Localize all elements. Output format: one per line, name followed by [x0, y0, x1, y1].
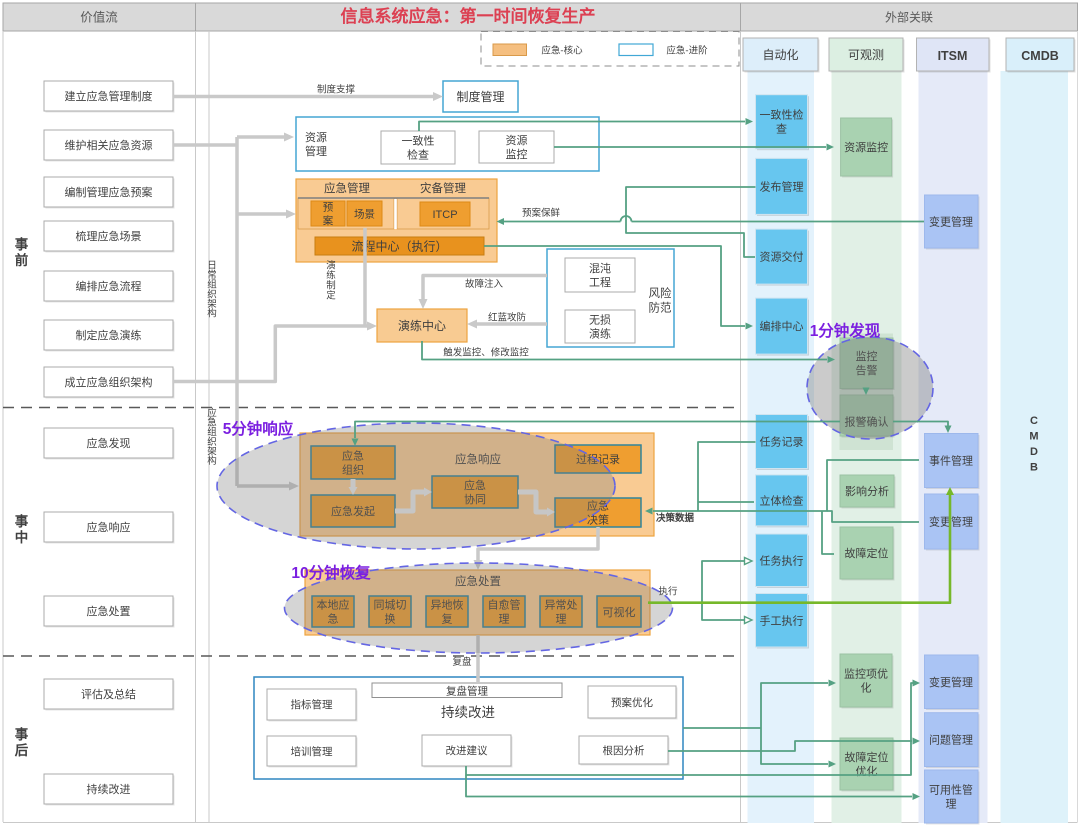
svg-text:事件管理: 事件管理 [929, 454, 973, 468]
svg-text:管理: 管理 [305, 144, 327, 158]
svg-text:理: 理 [946, 797, 957, 810]
svg-text:应急响应: 应急响应 [87, 520, 131, 534]
svg-text:事: 事 [15, 513, 29, 529]
svg-text:M: M [1029, 431, 1038, 443]
svg-text:红蓝攻防: 红蓝攻防 [488, 312, 527, 324]
svg-text:复盘管理: 复盘管理 [446, 685, 488, 698]
svg-text:评估及总结: 评估及总结 [81, 687, 136, 701]
svg-text:构: 构 [207, 455, 217, 467]
svg-text:检查: 检查 [407, 147, 429, 161]
svg-text:ITCP: ITCP [432, 209, 457, 221]
svg-text:一致性检: 一致性检 [760, 108, 804, 122]
svg-text:指标管理: 指标管理 [291, 698, 333, 711]
svg-text:ITSM: ITSM [938, 49, 968, 63]
svg-text:故障定位: 故障定位 [845, 750, 889, 764]
svg-text:中: 中 [15, 529, 29, 545]
svg-text:信息系统应急：第一时间恢复生产: 信息系统应急：第一时间恢复生产 [341, 6, 596, 26]
svg-text:维护相关应急资源: 维护相关应急资源 [65, 138, 153, 152]
svg-text:演练中心: 演练中心 [398, 318, 446, 333]
svg-text:应急-核心: 应急-核心 [541, 45, 583, 57]
svg-text:持续改进: 持续改进 [441, 705, 495, 720]
svg-text:监控项优: 监控项优 [844, 666, 888, 680]
svg-text:工程: 工程 [589, 276, 611, 289]
svg-text:应急发现: 应急发现 [87, 436, 131, 450]
svg-text:外部关联: 外部关联 [885, 10, 933, 25]
svg-text:应急-进阶: 应急-进阶 [666, 45, 708, 57]
svg-text:触发监控、修改监控: 触发监控、修改监控 [443, 347, 529, 359]
svg-text:故障定位: 故障定位 [845, 546, 889, 560]
svg-text:持续改进: 持续改进 [87, 782, 131, 796]
svg-text:事: 事 [15, 726, 29, 742]
svg-text:变更管理: 变更管理 [929, 675, 973, 689]
svg-text:编排中心: 编排中心 [760, 319, 804, 333]
svg-text:建立应急管理制度: 建立应急管理制度 [65, 89, 153, 103]
svg-text:一致性: 一致性 [402, 133, 435, 147]
svg-text:演练: 演练 [589, 326, 611, 340]
svg-text:事: 事 [15, 236, 29, 252]
svg-text:1分钟发现: 1分钟发现 [810, 321, 881, 340]
svg-text:成立应急组织架构: 成立应急组织架构 [65, 375, 153, 389]
svg-text:无损: 无损 [589, 312, 611, 326]
svg-text:后: 后 [15, 742, 29, 758]
svg-text:任务记录: 任务记录 [760, 436, 804, 449]
svg-text:影响分析: 影响分析 [845, 484, 889, 498]
svg-text:应急处置: 应急处置 [87, 604, 131, 618]
svg-text:制度管理: 制度管理 [456, 89, 504, 104]
svg-text:B: B [1030, 462, 1038, 474]
svg-text:自动化: 自动化 [762, 48, 798, 62]
svg-text:风险: 风险 [649, 286, 672, 300]
svg-text:应急管理: 应急管理 [324, 181, 370, 195]
svg-text:5分钟响应: 5分钟响应 [223, 419, 294, 438]
svg-text:资源: 资源 [506, 133, 528, 147]
svg-text:CMDB: CMDB [1021, 49, 1059, 63]
svg-text:可观测: 可观测 [848, 48, 884, 62]
svg-text:资源交付: 资源交付 [760, 250, 804, 264]
svg-text:资源: 资源 [305, 130, 327, 144]
svg-text:制定应急演练: 制定应急演练 [76, 328, 142, 342]
svg-text:手工执行: 手工执行 [760, 613, 804, 627]
svg-text:复盘: 复盘 [452, 656, 472, 668]
svg-text:预案优化: 预案优化 [611, 696, 653, 709]
svg-text:可用性管: 可用性管 [929, 782, 973, 796]
svg-text:场景: 场景 [354, 208, 375, 221]
svg-text:C: C [1030, 415, 1038, 427]
svg-text:问题管理: 问题管理 [929, 733, 973, 747]
svg-text:预: 预 [323, 202, 334, 214]
svg-text:改进建议: 改进建议 [446, 744, 488, 757]
svg-text:预案保鲜: 预案保鲜 [522, 207, 561, 219]
svg-text:定: 定 [326, 290, 336, 302]
svg-text:任务执行: 任务执行 [760, 553, 804, 567]
svg-text:案: 案 [323, 214, 334, 227]
svg-text:故障注入: 故障注入 [465, 278, 504, 290]
svg-text:前: 前 [15, 252, 29, 268]
svg-text:防范: 防范 [649, 300, 672, 314]
svg-text:制度支撑: 制度支撑 [317, 84, 356, 96]
svg-text:D: D [1030, 446, 1038, 458]
svg-text:编制管理应急预案: 编制管理应急预案 [65, 185, 153, 199]
svg-text:培训管理: 培训管理 [291, 745, 333, 758]
svg-text:执行: 执行 [658, 586, 678, 598]
svg-text:编排应急流程: 编排应急流程 [76, 279, 142, 293]
svg-text:立体检查: 立体检查 [760, 493, 804, 507]
svg-text:发布管理: 发布管理 [760, 179, 804, 193]
svg-text:价值流: 价值流 [80, 10, 118, 25]
svg-text:化: 化 [861, 680, 872, 694]
svg-text:根因分析: 根因分析 [603, 744, 645, 757]
svg-text:灾备管理: 灾备管理 [420, 181, 466, 195]
svg-text:查: 查 [776, 122, 787, 136]
svg-text:决策数据: 决策数据 [656, 512, 695, 524]
svg-text:构: 构 [207, 308, 217, 320]
svg-text:梳理应急场景: 梳理应急场景 [76, 229, 142, 243]
svg-text:资源监控: 资源监控 [844, 140, 888, 154]
svg-text:变更管理: 变更管理 [929, 215, 973, 229]
svg-text:监控: 监控 [506, 147, 528, 161]
svg-text:混沌: 混沌 [589, 262, 611, 275]
svg-text:10分钟恢复: 10分钟恢复 [291, 563, 371, 582]
